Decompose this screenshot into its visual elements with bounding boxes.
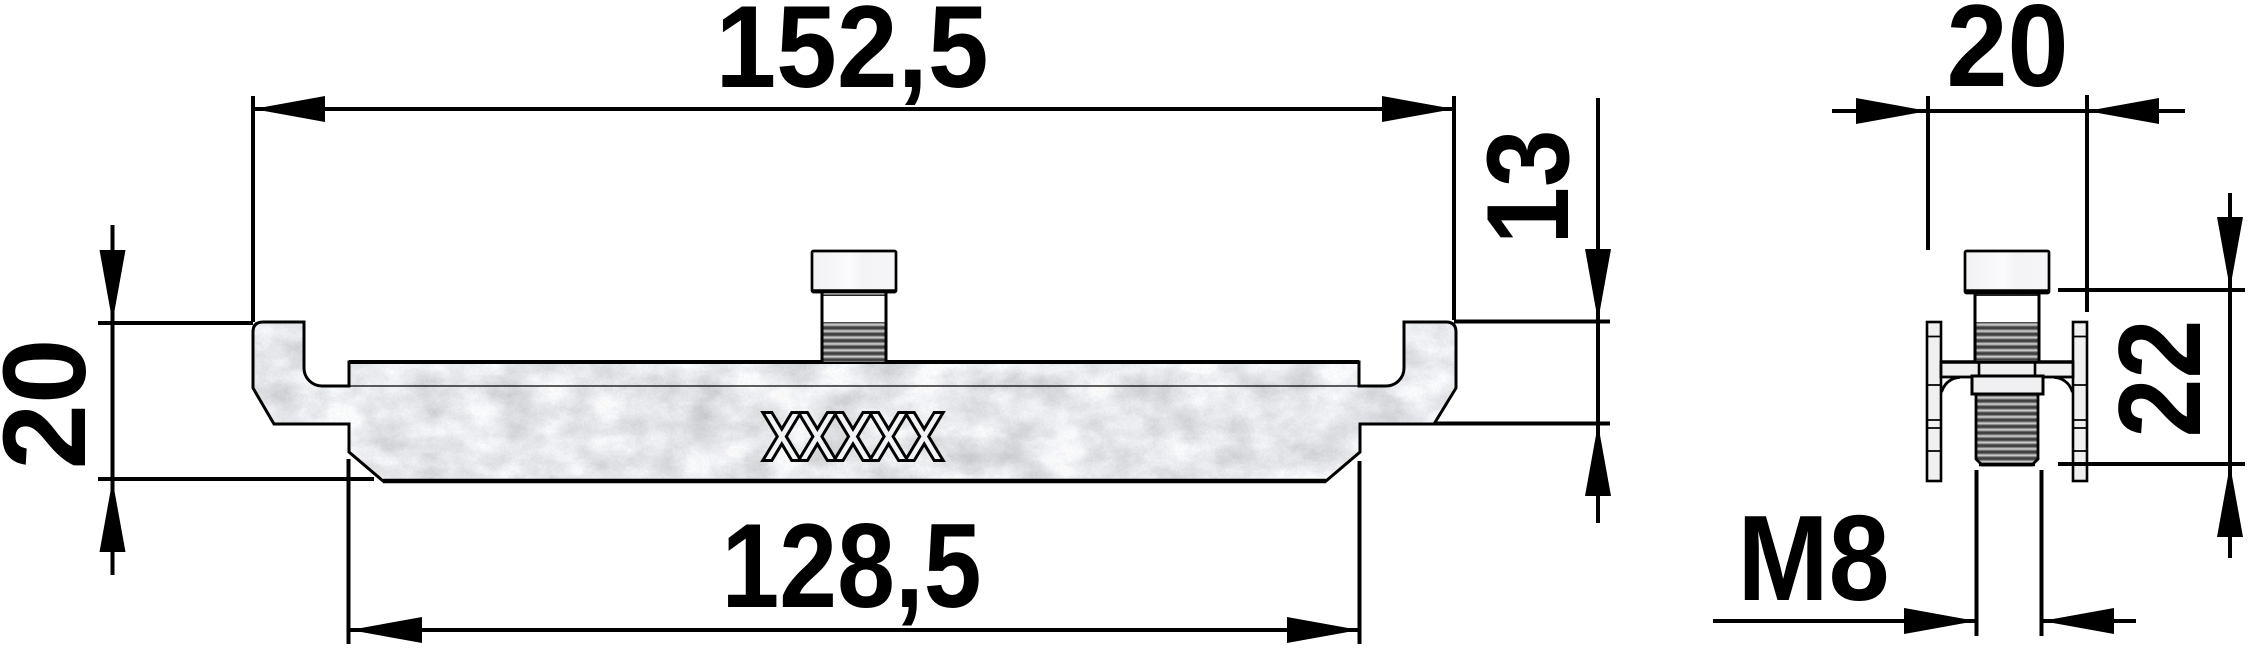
svg-text:13: 13 <box>1462 130 1593 245</box>
svg-text:152,5: 152,5 <box>716 0 989 112</box>
svg-text:M8: M8 <box>1738 490 1890 626</box>
svg-text:22: 22 <box>2094 320 2225 438</box>
svg-text:20: 20 <box>0 339 111 470</box>
svg-text:20: 20 <box>1947 0 2069 111</box>
svg-text:128,5: 128,5 <box>722 499 982 633</box>
